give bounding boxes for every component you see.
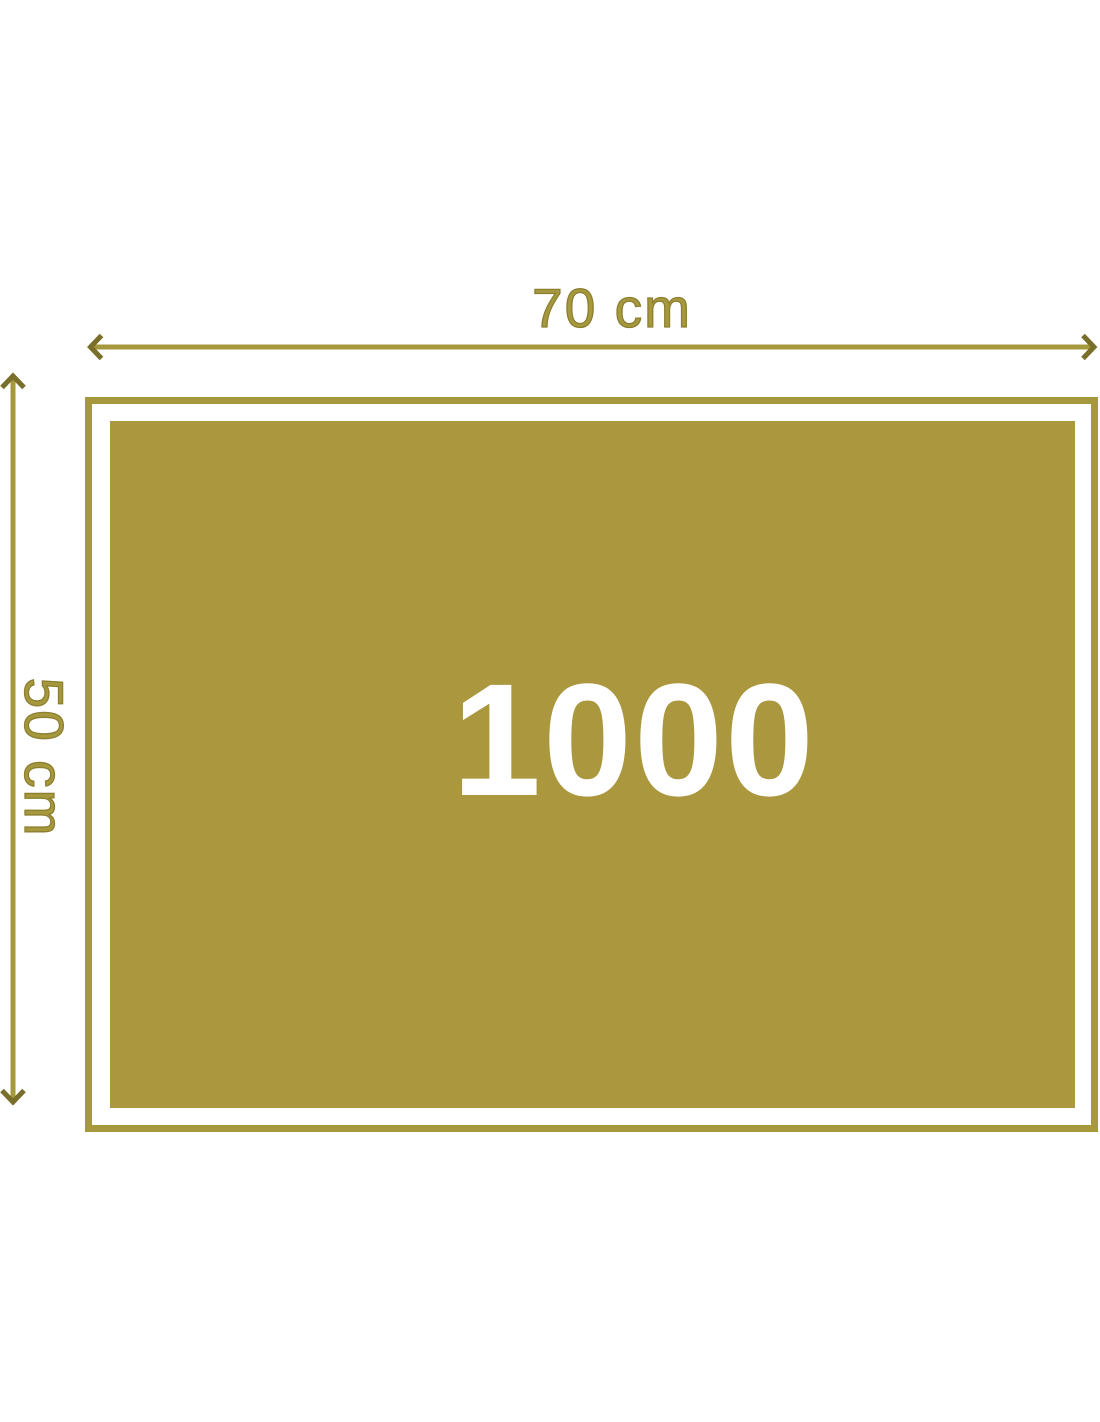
svg-text:50 cm: 50 cm bbox=[13, 678, 75, 838]
svg-text:1000: 1000 bbox=[452, 650, 816, 829]
svg-text:70 cm: 70 cm bbox=[532, 277, 692, 339]
